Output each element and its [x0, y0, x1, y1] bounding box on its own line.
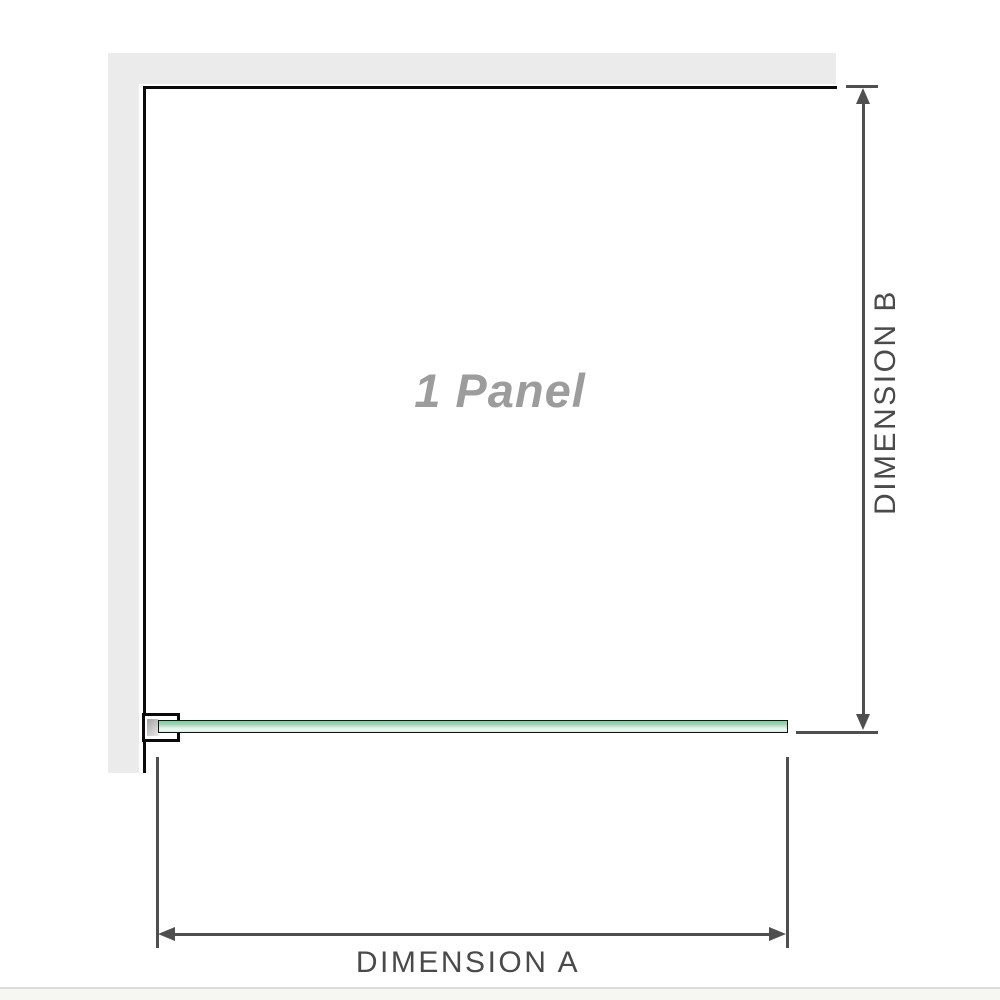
left-wall-inner-edge [143, 86, 146, 773]
page-below-strip [0, 989, 1000, 1000]
arrow-up-icon [856, 88, 870, 104]
dim-b-bottom-tick [796, 731, 878, 734]
dimension-b-label: DIMENSION B [870, 192, 902, 612]
arrow-left-icon [158, 927, 175, 941]
dimension-a-label: DIMENSION A [268, 946, 668, 980]
panel-count-label: 1 Panel [350, 366, 650, 416]
arrow-down-icon [856, 714, 870, 730]
dim-a-line [173, 933, 771, 936]
dimension-diagram: 1 Panel DIMENSION B DIMENSION A [0, 0, 1000, 1000]
glass-panel [158, 720, 788, 733]
arrow-right-icon [769, 927, 786, 941]
top-wall-inner-edge [143, 86, 837, 89]
top-wall [108, 53, 836, 84]
dim-a-left-extension [156, 757, 159, 948]
wall-bracket-channel [147, 719, 158, 736]
dim-a-right-extension [786, 757, 789, 948]
left-wall [108, 53, 139, 773]
dim-b-line [862, 100, 865, 718]
